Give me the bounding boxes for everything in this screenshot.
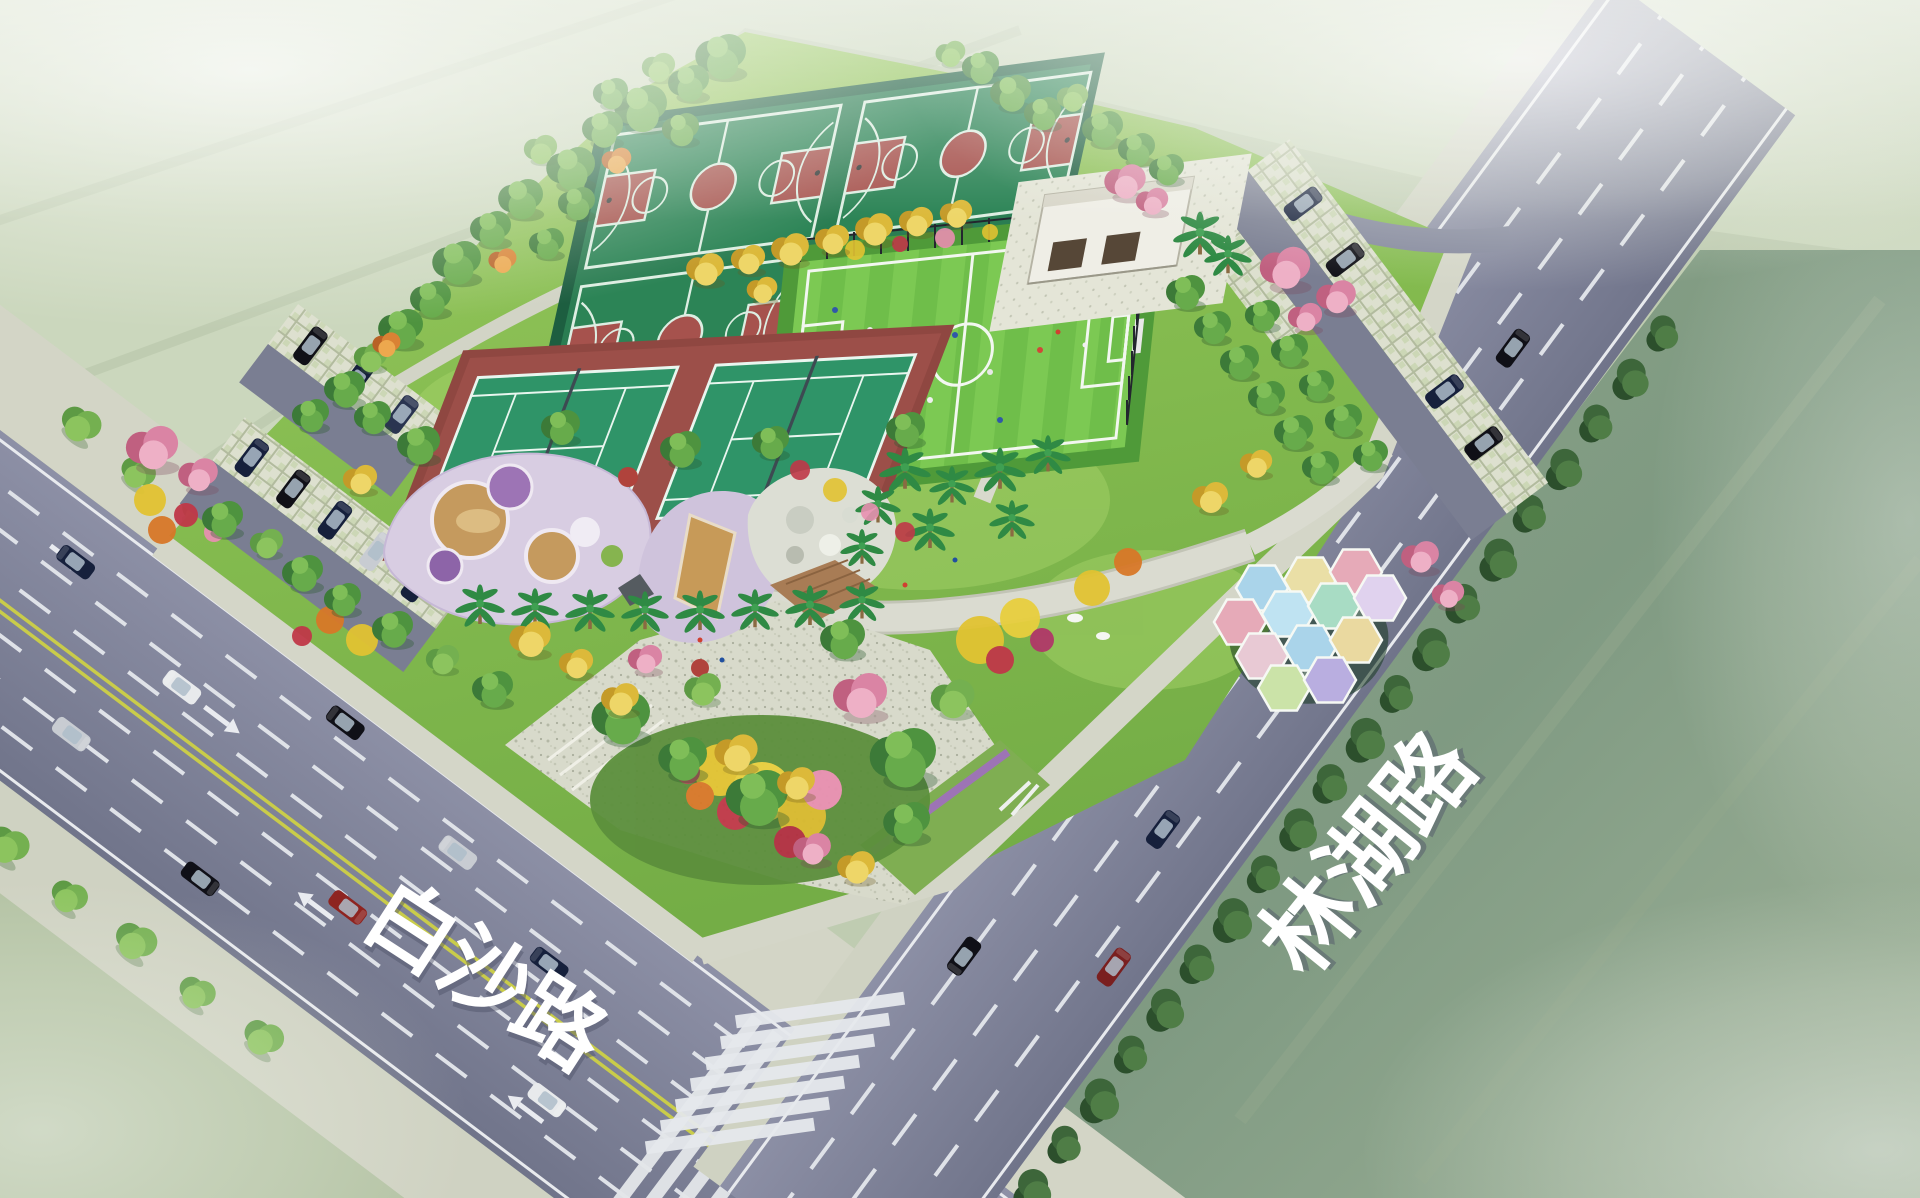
swan-sculpture: [1067, 614, 1083, 623]
park-masterplan-rendering: 白沙路 白沙路 林湖路 林湖路: [0, 0, 1920, 1198]
scene-canvas: 白沙路 白沙路 林湖路 林湖路: [0, 0, 1920, 1198]
